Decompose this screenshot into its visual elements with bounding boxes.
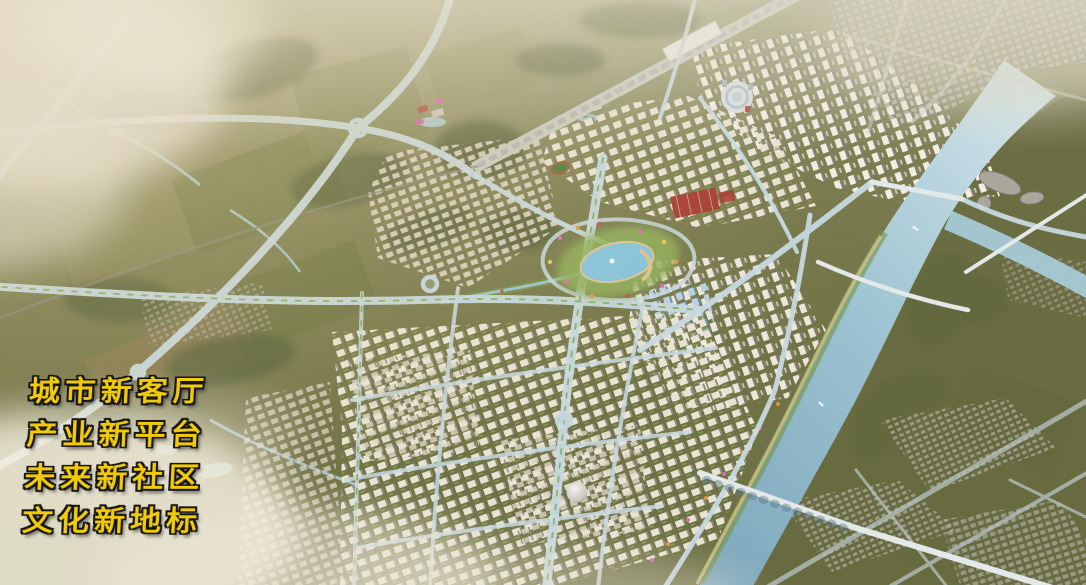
slogan-line-4: 文化新地标 [21, 500, 203, 543]
slogan-line-1: 城市新客厅 [28, 370, 210, 413]
slogan-line-2: 产业新平台 [25, 413, 207, 456]
slogan-line-3: 未来新社区 [23, 456, 205, 499]
aerial-masterplan-rendering: 城市新客厅 产业新平台 未来新社区 文化新地标 [0, 0, 1086, 585]
slogan-overlay: 城市新客厅 产业新平台 未来新社区 文化新地标 [21, 370, 210, 543]
